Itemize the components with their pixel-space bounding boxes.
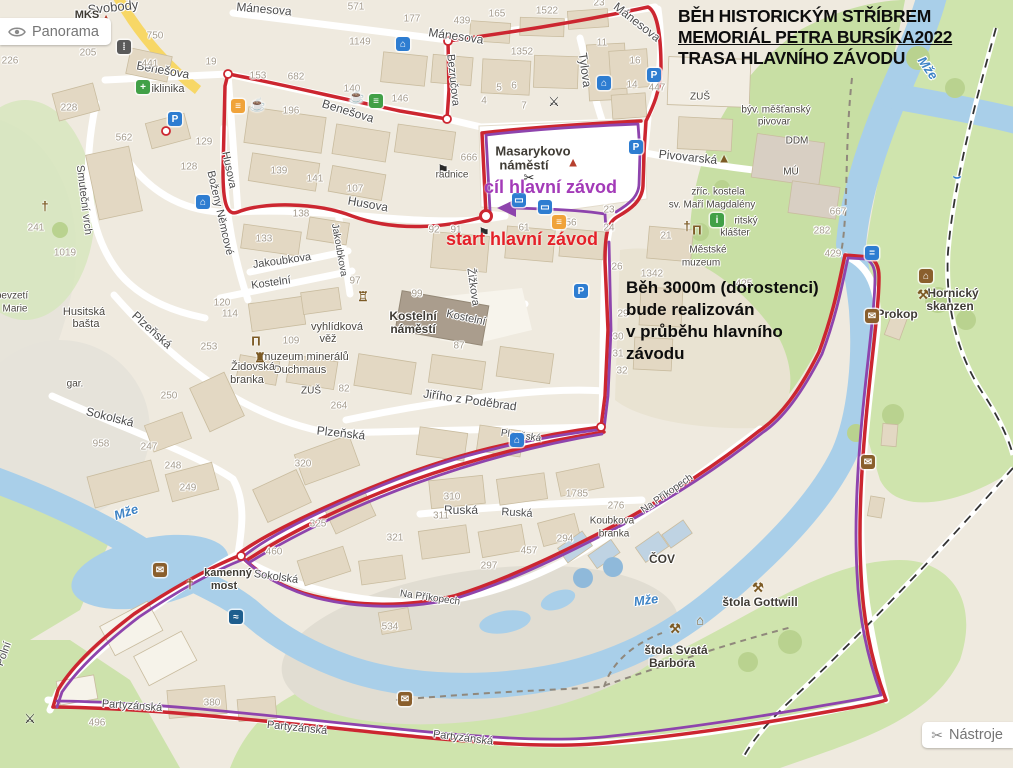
parking-icon[interactable]: P xyxy=(629,140,643,154)
race-title: BĚH HISTORICKÝM STŘÍBREM MEMORIÁL PETRA … xyxy=(678,6,1013,69)
basket-icon[interactable]: ≡ xyxy=(552,215,566,229)
hotel-icon[interactable]: ⌂ xyxy=(196,195,210,209)
swim-icon[interactable]: ≈ xyxy=(229,610,243,624)
mine-icon[interactable]: ⚒ xyxy=(669,621,681,637)
mailbox-icon[interactable]: ✉ xyxy=(861,455,875,469)
start-marker[interactable] xyxy=(481,211,492,222)
restaurant-icon[interactable]: ⚔ xyxy=(24,711,36,727)
tools-icon: ✂ xyxy=(931,727,943,744)
trafficlight-icon[interactable]: ⁞ xyxy=(117,40,131,54)
hut-icon[interactable]: ⌂ xyxy=(696,613,704,628)
parking-icon[interactable]: P xyxy=(574,284,588,298)
museum-icon[interactable]: Π xyxy=(251,334,260,349)
mailbox-icon[interactable]: ✉ xyxy=(153,563,167,577)
cross-icon[interactable]: † xyxy=(41,199,48,214)
race-note-line: Běh 3000m (dorostenci) xyxy=(626,277,819,299)
basket-icon[interactable]: ≡ xyxy=(231,99,245,113)
weir-icon[interactable]: ⌣ xyxy=(953,169,962,185)
cov-tank xyxy=(603,557,623,577)
race-title-line1: BĚH HISTORICKÝM STŘÍBREM xyxy=(678,6,1013,27)
start-annotation: start hlavní závod xyxy=(446,229,598,250)
panorama-button-label: Panorama xyxy=(32,24,99,40)
minehouse-icon[interactable]: ⌂ xyxy=(919,269,933,283)
cone-icon[interactable]: ▲ xyxy=(567,155,580,170)
panorama-button[interactable]: Panorama xyxy=(0,18,111,45)
mailbox-icon[interactable]: ✉ xyxy=(865,309,879,323)
tools-button[interactable]: ✂ Nástroje xyxy=(922,722,1013,748)
mailbox-icon[interactable]: ✉ xyxy=(398,692,412,706)
race-note: Běh 3000m (dorostenci)bude realizovánv p… xyxy=(626,277,819,365)
basemap-svg xyxy=(0,0,1013,768)
castle-icon[interactable]: ♜ xyxy=(254,350,266,366)
eye-icon xyxy=(8,26,26,38)
tools-button-label: Nástroje xyxy=(949,727,1003,743)
cross-icon[interactable]: † xyxy=(186,577,193,592)
museum-icon[interactable]: Π xyxy=(692,223,701,238)
parking-icon[interactable]: P xyxy=(168,112,182,126)
drink-icon[interactable]: ☕ xyxy=(250,97,266,113)
restaurant-icon[interactable]: ⚔ xyxy=(548,94,560,110)
parking-icon[interactable]: P xyxy=(647,68,661,82)
cross-icon[interactable]: † xyxy=(683,219,690,234)
map-canvas[interactable]: SvobodyBenešovaBenešovaMánesovaMánesovaM… xyxy=(0,0,1013,768)
belltower-icon[interactable]: ▲ xyxy=(718,151,731,166)
hotel-icon[interactable]: ⌂ xyxy=(510,433,524,447)
clinic-icon[interactable]: + xyxy=(136,80,150,94)
cov-tank xyxy=(573,568,593,588)
tower-icon[interactable]: ♖ xyxy=(357,289,369,305)
info-icon[interactable]: i xyxy=(710,213,724,227)
cafe-icon[interactable]: ☕ xyxy=(349,89,365,105)
hotel-icon[interactable]: ⌂ xyxy=(597,76,611,90)
finish-annotation: cíl hlavní závod xyxy=(484,177,617,198)
hotel-icon[interactable]: ⌂ xyxy=(396,37,410,51)
mine-icon[interactable]: ⚒ xyxy=(752,580,764,596)
bus-icon[interactable]: ▭ xyxy=(538,200,552,214)
race-title-line2: MEMORIÁL PETRA BURSÍKA2022 xyxy=(678,27,1013,48)
race-note-line: bude realizován xyxy=(626,299,819,321)
bridgeicon-icon[interactable]: = xyxy=(865,246,879,260)
race-note-line: v průběhu hlavního xyxy=(626,321,819,343)
shop-icon[interactable]: ≡ xyxy=(369,94,383,108)
race-note-line: závodu xyxy=(626,343,819,365)
mine-icon[interactable]: ⚒ xyxy=(917,287,929,303)
race-title-line3: TRASA HLAVNÍHO ZÁVODU xyxy=(678,48,1013,69)
flag-icon[interactable]: ⚑ xyxy=(437,162,449,178)
